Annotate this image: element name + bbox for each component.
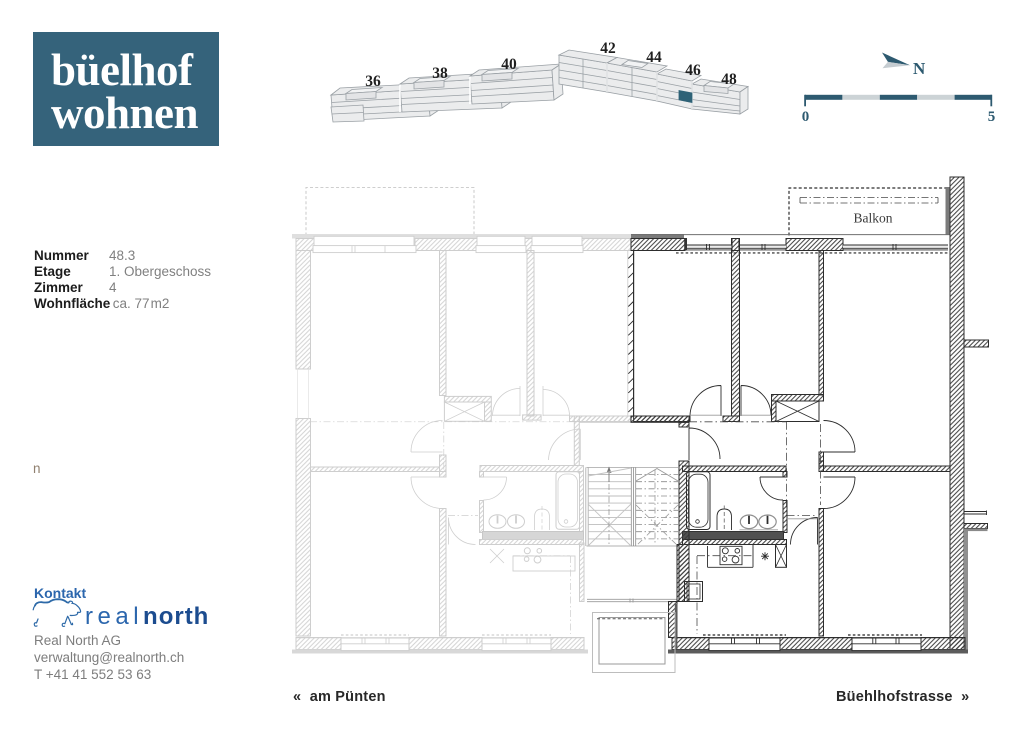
svg-text:5: 5 xyxy=(988,109,996,125)
svg-text:44: 44 xyxy=(646,49,662,66)
svg-text:N: N xyxy=(913,59,926,78)
svg-text:Balkon: Balkon xyxy=(854,211,893,226)
svg-text:48: 48 xyxy=(721,71,737,88)
svg-text:40: 40 xyxy=(501,56,517,73)
svg-text:36: 36 xyxy=(365,73,381,90)
svg-text:0: 0 xyxy=(802,109,810,125)
svg-text:46: 46 xyxy=(685,62,701,79)
svg-text:38: 38 xyxy=(432,65,448,82)
svg-text:42: 42 xyxy=(600,40,616,57)
